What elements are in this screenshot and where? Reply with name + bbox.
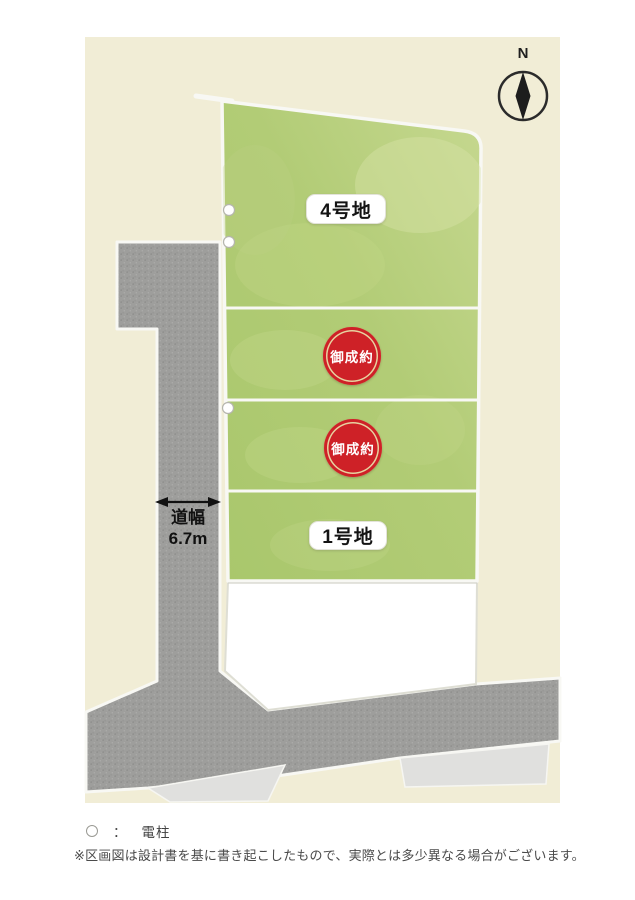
sold-badge: 御成約	[323, 327, 381, 385]
road-width-value: 6.7m	[156, 528, 220, 549]
compass-north-label: N	[508, 45, 538, 62]
road-width-label: 道幅 6.7m	[156, 507, 220, 549]
utility-pole-icon	[223, 403, 234, 414]
utility-pole-icon	[224, 237, 235, 248]
legend-separator: ：	[113, 821, 127, 841]
lot-4-label: 4号地	[306, 194, 386, 224]
site-plan-drawing	[0, 0, 635, 900]
utility-pole-legend-icon	[86, 825, 98, 837]
road-width-title: 道幅	[156, 507, 220, 528]
utility-pole-icon	[224, 205, 235, 216]
lot-1-label: 1号地	[309, 521, 387, 550]
sold-badge: 御成約	[324, 419, 382, 477]
legend-label: 電柱	[142, 821, 171, 841]
legend: ： 電柱	[86, 821, 171, 841]
disclaimer-note: ※区画図は設計書を基に書き起こしたもので、実際とは多少異なる場合がございます。	[74, 845, 594, 864]
site-plan-page: N 4号地 1号地 御成約 御成約 道幅 6.7m ： 電柱 ※区画図は設計書を…	[0, 0, 635, 900]
